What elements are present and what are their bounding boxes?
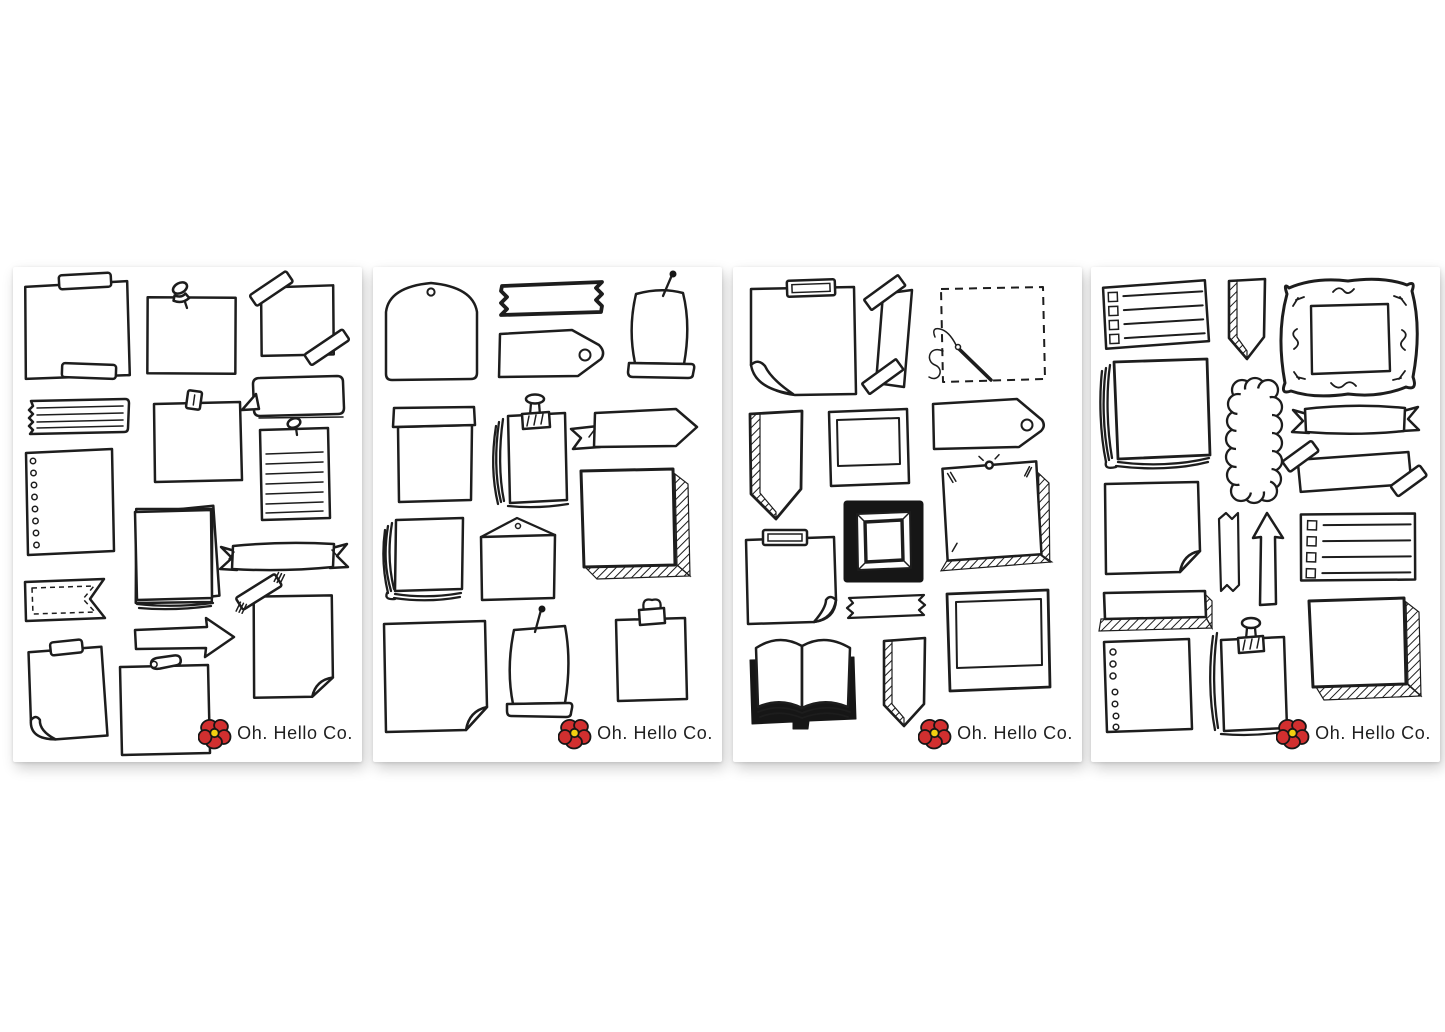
bold-washi-tape-sticker [501, 282, 602, 315]
sticker-sheet-3: Oh. Hello Co. [733, 267, 1082, 762]
sticker-sheet-2: Oh. Hello Co. [373, 267, 722, 762]
brand-logo: Oh. Hello Co. [198, 716, 353, 750]
sticker-sheet-4: Oh. Hello Co. [1091, 267, 1440, 762]
hole-punched-paper-sticker [1104, 639, 1192, 732]
taped-sticky-note-sticker [28, 639, 108, 741]
arrow-up-sticker [1253, 513, 1283, 605]
poppy-flower-icon [558, 716, 592, 750]
sheet-2-doodles [373, 267, 722, 762]
folded-corner-sticky-sticker [1105, 482, 1200, 574]
shadowed-square-sticker [581, 469, 690, 579]
product-image: Oh. Hello Co. [0, 0, 1445, 1032]
safety-pin-note-sticker [120, 655, 210, 755]
brand-logo: Oh. Hello Co. [1276, 716, 1431, 750]
pinned-scroll-2-sticker [507, 606, 572, 717]
sheet-3-doodles [733, 267, 1082, 762]
bold-picture-frame-sticker [844, 501, 923, 582]
envelope-hole-flap-sticker [386, 283, 477, 380]
ribbon-banner-sticker [1292, 406, 1419, 434]
envelope-triangle-flap-sticker [481, 518, 555, 600]
taped-curl-paper-sticker [232, 571, 336, 700]
brand-logo: Oh. Hello Co. [918, 716, 1073, 750]
poppy-flower-icon [918, 716, 952, 750]
torn-lined-strip-sticker [29, 399, 129, 434]
arrow-right-sticker [135, 618, 234, 657]
paper-stack-sticker [134, 506, 220, 609]
checklist-note-sticker [1103, 280, 1209, 349]
hatched-bookmark-sticker [884, 638, 925, 726]
open-book-sticker [750, 640, 856, 729]
gift-tag-sticker [933, 399, 1044, 449]
sheet-1-doodles [13, 267, 362, 762]
brand-logo-text: Oh. Hello Co. [1315, 723, 1431, 744]
pinned-note-sticker [146, 280, 236, 375]
gift-tag-sticker [499, 330, 603, 377]
ornate-frame-sticker [1281, 279, 1417, 396]
sheet-4-doodles [1091, 267, 1440, 762]
brand-logo-text: Oh. Hello Co. [597, 723, 713, 744]
brand-logo: Oh. Hello Co. [558, 716, 713, 750]
double-taped-note-sticker [1281, 436, 1427, 500]
shadowed-bar-sticker [1099, 591, 1212, 631]
hatched-pennant-sticker [750, 411, 802, 519]
vertical-washi-tape-sticker [1219, 513, 1239, 591]
clipped-note-sticker [154, 390, 242, 482]
polaroid-frame-large-sticker [947, 590, 1050, 691]
stitched-dashed-square-sticker [929, 287, 1045, 382]
diagonal-washi-strip-sticker [862, 275, 912, 394]
hole-punched-paper-sticker [26, 449, 114, 555]
ribbon-banner-sticker [220, 543, 348, 570]
stitched-flag-sticker [25, 579, 105, 621]
binder-clip-note-sticker [616, 599, 687, 701]
corner-taped-note-sticker [247, 270, 352, 367]
pennant-ribbon-sticker [571, 409, 697, 449]
sticker-sheet-1: Oh. Hello Co. [13, 267, 362, 762]
poppy-flower-icon [1276, 716, 1310, 750]
taped-curl-note-sticker [751, 279, 856, 395]
speech-bubble-sticker [242, 376, 344, 418]
small-washi-tape-sticker [847, 595, 925, 618]
paper-stack-sticker [1100, 359, 1210, 468]
polaroid-frame-sticker [829, 409, 909, 486]
taped-note-sticker [24, 273, 130, 379]
checklist-note-2-sticker [1299, 511, 1417, 584]
taped-curl-note-2-sticker [746, 530, 836, 624]
folded-corner-square-sticker [384, 621, 487, 732]
pinned-shadow-note-sticker [937, 453, 1052, 571]
pinned-lined-note-sticker [260, 417, 330, 520]
brand-logo-text: Oh. Hello Co. [237, 723, 353, 744]
clipped-paper-stack-sticker [493, 395, 568, 508]
layered-napkin-sticker [383, 518, 463, 600]
hatched-bookmark-sticker [1229, 279, 1265, 359]
shadowed-square-sticker [1309, 598, 1421, 700]
brand-logo-text: Oh. Hello Co. [957, 723, 1073, 744]
scalloped-strip-sticker [1226, 378, 1282, 503]
pinned-scroll-sticker [628, 271, 694, 378]
poppy-flower-icon [198, 716, 232, 750]
pocket-pouch-sticker [393, 407, 475, 502]
